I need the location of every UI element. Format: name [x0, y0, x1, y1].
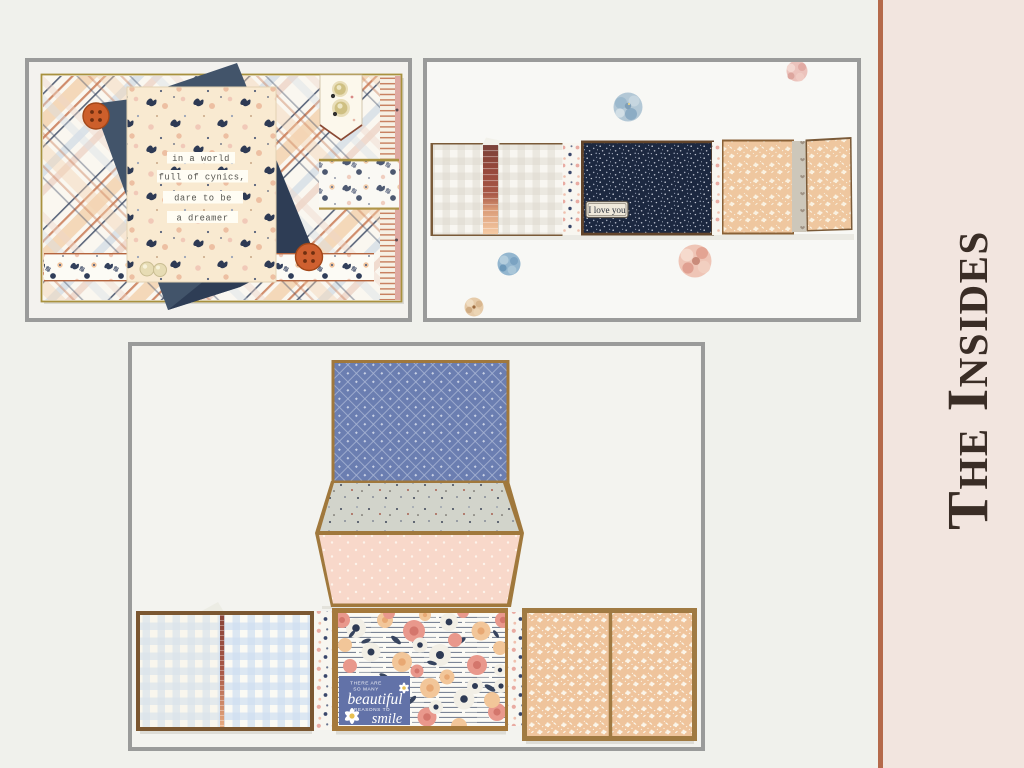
svg-text:beautiful: beautiful: [347, 691, 402, 708]
svg-text:I love you: I love you: [588, 205, 626, 215]
svg-text:smile: smile: [372, 711, 403, 727]
svg-text:a dreamer: a dreamer: [176, 214, 228, 224]
svg-text:in a world: in a world: [172, 154, 230, 164]
svg-text:dare to be: dare to be: [174, 194, 232, 204]
svg-text:THERE ARE: THERE ARE: [350, 681, 382, 687]
svg-text:full of cynics,: full of cynics,: [159, 173, 246, 183]
